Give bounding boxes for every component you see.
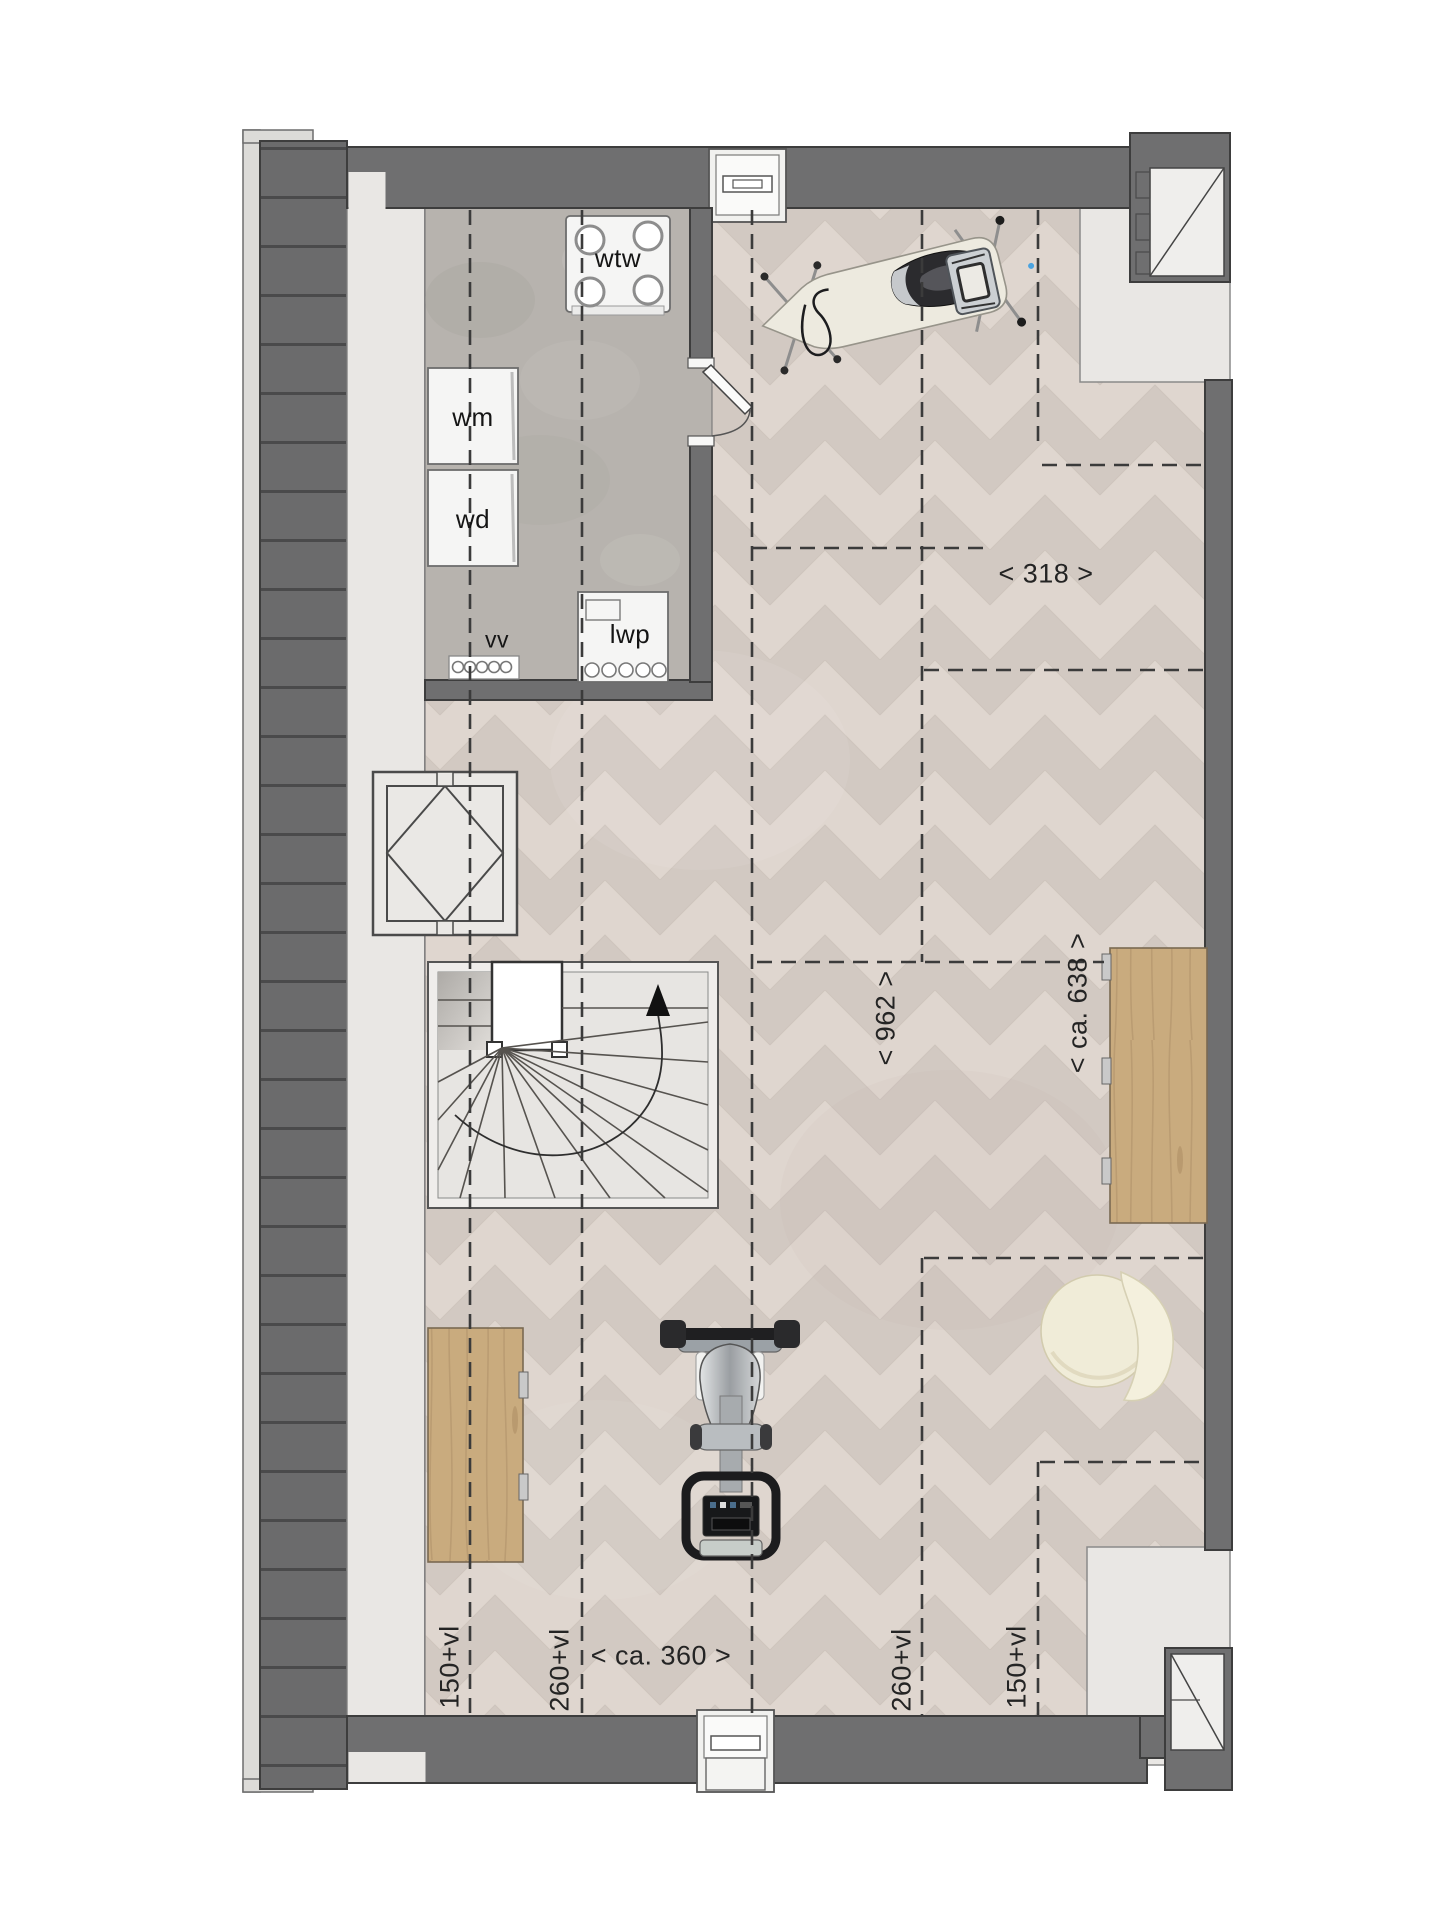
bench-hinge <box>519 1474 528 1500</box>
door-frame-bottom <box>688 436 714 446</box>
desk-hinge <box>1102 1158 1111 1184</box>
corner-roof-bottom-right <box>1165 1648 1232 1790</box>
stair-well <box>492 962 562 1050</box>
label-vv: vv <box>485 629 509 652</box>
staircase <box>428 962 718 1208</box>
knee-wall-strip <box>347 208 425 1716</box>
corner-roof-top-right <box>1130 133 1230 282</box>
left-roof-slope <box>243 130 347 1792</box>
handlebar-grip-right <box>774 1320 800 1348</box>
floor-plan-canvas: wtw wm wd vv lwp < 318 > < 962 > < ca. 6… <box>0 0 1440 1920</box>
dim-150vl-left: 150+vl <box>437 1625 464 1708</box>
label-wm: wm <box>452 404 493 430</box>
floor-plan-drawing <box>0 0 1440 1920</box>
handlebar-grip-left <box>660 1320 686 1348</box>
label-wd: wd <box>456 506 490 532</box>
label-wtw: wtw <box>595 245 641 271</box>
dim-150vl-right: 150+vl <box>1004 1625 1031 1708</box>
fold-bench-left <box>428 1328 528 1562</box>
dim-ca-360: < ca. 360 > <box>591 1643 732 1670</box>
desk-hinge <box>1102 954 1111 980</box>
skylight-bottom <box>697 1710 774 1792</box>
vv-grille <box>449 656 519 679</box>
roof-shaft-diamond <box>373 772 517 935</box>
dim-260vl-right: 260+vl <box>889 1628 916 1711</box>
label-lwp: lwp <box>610 621 651 647</box>
desk-hinge <box>1102 1058 1111 1084</box>
dim-260vl-left: 260+vl <box>547 1628 574 1711</box>
fold-desk-right <box>1102 948 1207 1223</box>
skylight-top <box>709 149 786 222</box>
dim-ca-638: < ca. 638 > <box>1065 933 1092 1074</box>
bench-hinge <box>519 1372 528 1398</box>
dim-318: < 318 > <box>998 561 1093 588</box>
dim-962: < 962 > <box>873 970 900 1065</box>
right-wall <box>1205 380 1232 1550</box>
